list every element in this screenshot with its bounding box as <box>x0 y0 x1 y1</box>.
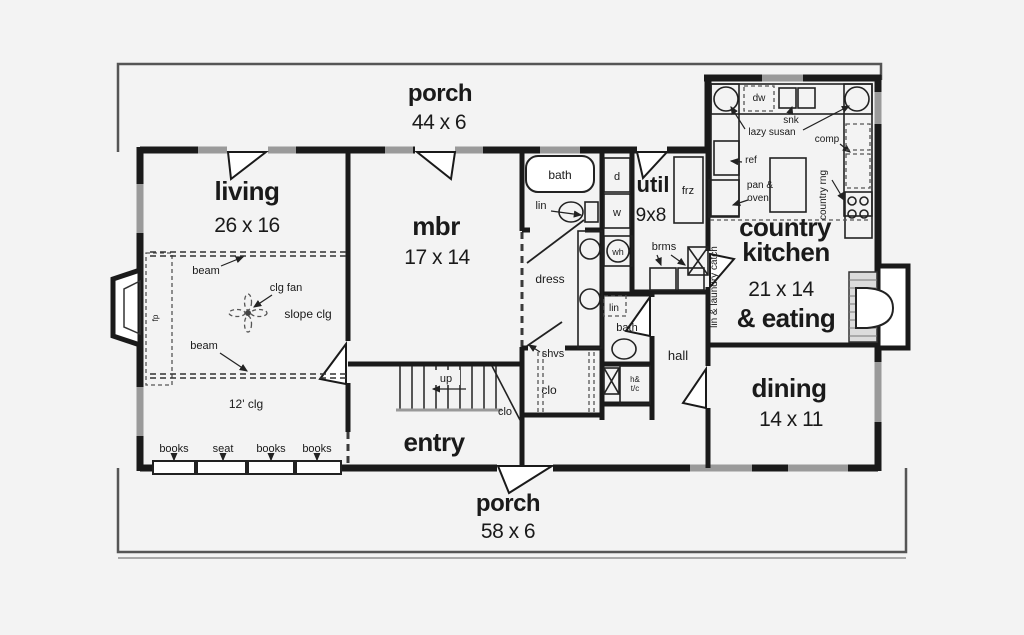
entry-name: entry <box>403 427 465 457</box>
linen-label: lin <box>535 200 546 212</box>
living-ceiling: beam beam clg fan slope clg 12' clg <box>150 252 346 411</box>
fireplace-label: fp <box>151 314 160 321</box>
dishwasher-label: dw <box>753 93 767 104</box>
compactor-box <box>846 124 870 150</box>
refrigerator-box <box>714 141 739 175</box>
sink-bowl-2 <box>798 88 815 108</box>
lazy-susan-label: lazy susan <box>748 127 795 138</box>
books-label-2: books <box>256 443 286 455</box>
refrigerator-label: ref <box>745 155 757 166</box>
ceiling-fan-label: clg fan <box>270 282 302 294</box>
stair-up-label: up <box>440 373 452 385</box>
builtins: books seat books books <box>153 443 341 474</box>
ceiling-height-label: 12' clg <box>229 397 263 411</box>
toilet2-icon <box>612 339 636 359</box>
dining-name: dining <box>752 373 827 403</box>
broom-closet-1 <box>650 268 676 290</box>
lazy-susan-icon-right <box>845 87 869 111</box>
dining-dims: 14 x 11 <box>759 408 823 431</box>
brooms-label: brms <box>652 241 677 253</box>
hall-dining-door <box>683 369 706 408</box>
staircase: up clo <box>396 366 520 420</box>
sink-bowl-1 <box>779 88 796 108</box>
window-seat <box>197 461 246 474</box>
bath2-label: bath <box>616 322 637 334</box>
floor-plan-drawing: up clo bath lin d w wh frz brms lin & la… <box>0 0 1024 635</box>
doors <box>228 152 734 493</box>
stair-closet-label: clo <box>498 406 512 418</box>
lazy-susan-icon-left <box>714 87 738 111</box>
entry-porch-door <box>498 466 552 493</box>
porch-bottom-dims: 58 x 6 <box>481 520 535 543</box>
living-name: living <box>215 176 280 206</box>
firebox-right <box>856 288 893 328</box>
freezer-label: frz <box>682 185 694 197</box>
kitchen-island <box>770 158 806 212</box>
compactor-label: comp <box>815 134 840 145</box>
living-dims: 26 x 16 <box>214 214 279 237</box>
pantry-box <box>846 154 870 188</box>
lavatory-icon-1 <box>580 239 600 259</box>
porch-bottom-name: porch <box>476 490 540 517</box>
dress-label: dress <box>535 272 564 286</box>
kitchen-dims: 21 x 14 <box>748 278 814 301</box>
util-dims: 9x8 <box>636 205 667 226</box>
seat-label: seat <box>213 443 234 455</box>
kitchen-fireplace <box>849 266 908 348</box>
bookcase-2 <box>248 461 294 474</box>
floor-plan-page: up clo bath lin d w wh frz brms lin & la… <box>0 0 1024 635</box>
beam-top-label: beam <box>192 265 220 277</box>
porch-top-dims: 44 x 6 <box>412 111 466 134</box>
slope-ceiling-label: slope clg <box>284 307 331 321</box>
lavatory-icon-2 <box>580 289 600 309</box>
dress-closet-door <box>527 322 562 346</box>
bookcase-3 <box>296 461 341 474</box>
sink-label: snk <box>783 115 800 126</box>
mbr-porch-door <box>417 152 455 179</box>
washer-label: w <box>612 207 621 219</box>
kitchen-name-2: kitchen <box>742 237 830 267</box>
ceiling-fan-icon <box>229 294 267 332</box>
pan-oven-label-2: oven <box>747 193 769 204</box>
linen2-label: lin <box>609 303 619 314</box>
toilet-tank <box>585 202 598 222</box>
mbr-name: mbr <box>412 211 460 241</box>
beam-bottom-label: beam <box>190 340 218 352</box>
fireplace-bump-left <box>113 270 140 345</box>
hall-closet-label-1: h& <box>630 375 640 384</box>
books-label-3: books <box>302 443 332 455</box>
bookcase-1 <box>153 461 195 474</box>
living-porch-door <box>228 152 266 179</box>
util-name: util <box>637 172 670 197</box>
mbr-dims: 17 x 14 <box>404 246 470 269</box>
water-heater-label: wh <box>611 247 624 257</box>
dryer-label: d <box>614 171 620 183</box>
porch-top-name: porch <box>408 80 472 107</box>
bath-label: bath <box>548 168 571 182</box>
hall-label: hall <box>668 348 688 363</box>
dressing-area: dress shvs clo <box>529 231 602 412</box>
bath-top: bath lin <box>526 156 598 222</box>
books-label-1: books <box>159 443 189 455</box>
kitchen-name-3: & eating <box>737 303 836 333</box>
laundry-chute-label: lin & laundry catch <box>709 246 720 328</box>
dress-bath-door <box>527 220 584 263</box>
shelves-label: shvs <box>542 348 565 360</box>
closet-label: clo <box>541 383 557 397</box>
pan-oven-box <box>709 180 739 217</box>
hall-closet-label-2: t/c <box>631 384 639 393</box>
